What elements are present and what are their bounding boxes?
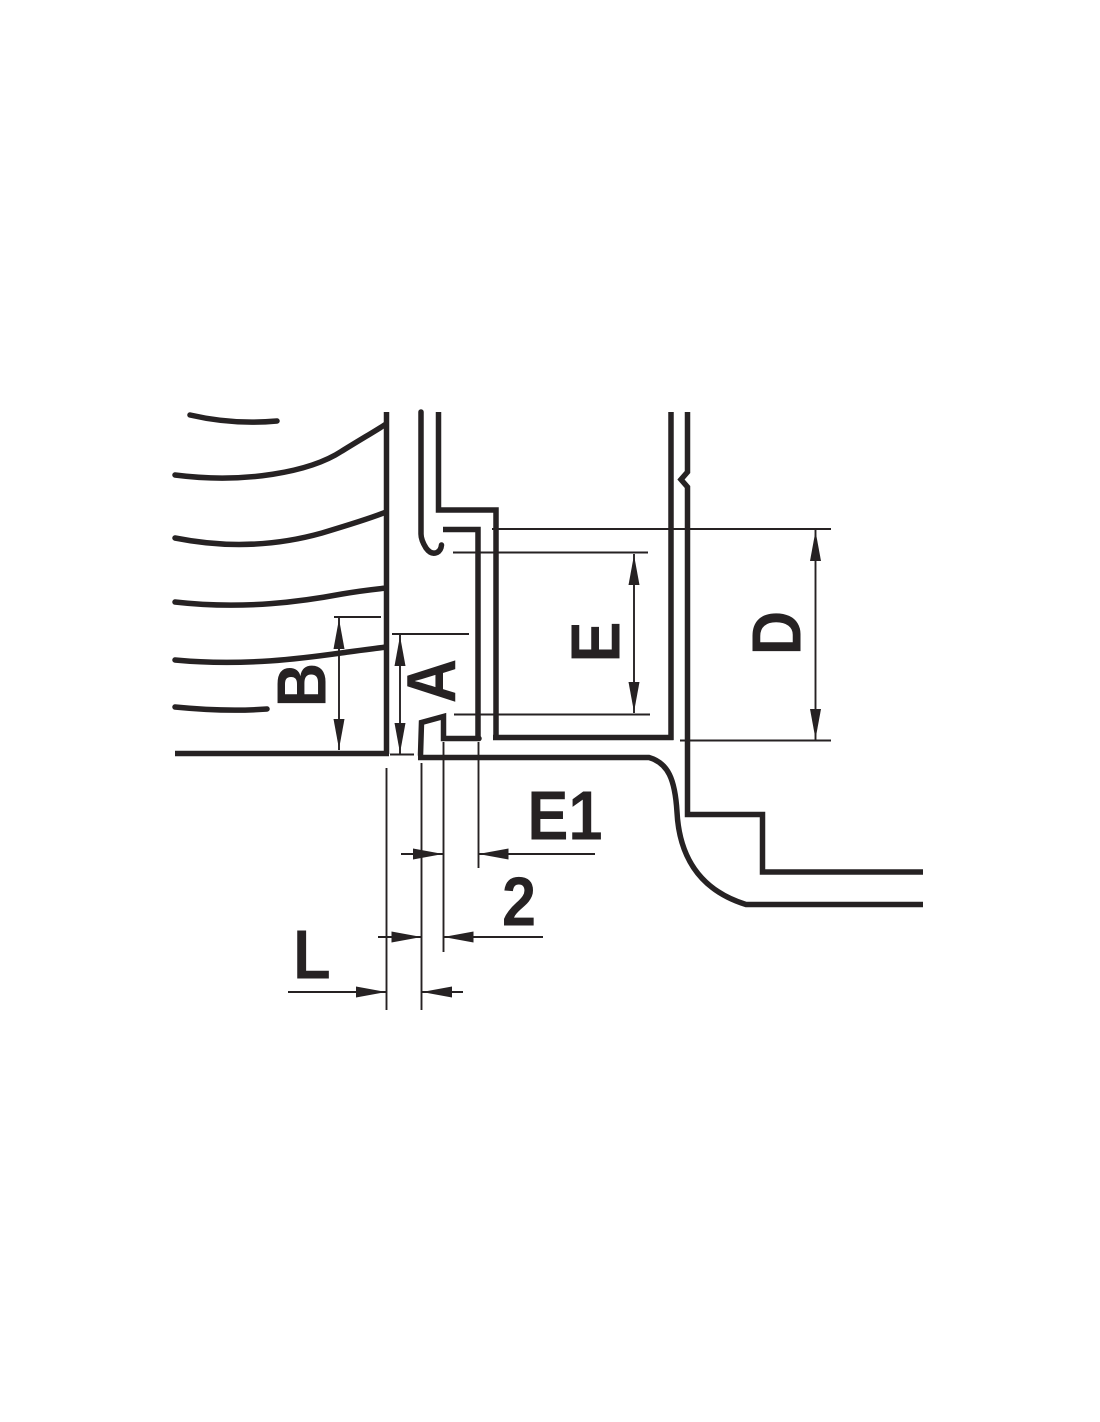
bulb-surface-arc-4 — [175, 588, 386, 605]
dimension-label-2: 2 — [502, 862, 536, 941]
dimension-arrowheads — [334, 531, 822, 998]
bulb-surface-arc-5 — [175, 647, 386, 662]
dimension-label-e1: E1 — [527, 776, 602, 855]
arrow-a-down-icon — [395, 723, 406, 753]
bulb-surface-arc-3 — [175, 512, 386, 545]
arrow-b-up-icon — [334, 619, 345, 649]
bulb-surface-arc-1 — [190, 415, 277, 422]
dimension-labels: B A E D E1 2 L — [262, 611, 816, 994]
skirt-profile — [418, 758, 923, 905]
dimension-label-a: A — [392, 659, 471, 703]
dimension-label-l: L — [293, 915, 331, 994]
arrow-l-right-icon — [422, 987, 452, 998]
arrow-l-left-icon — [356, 987, 386, 998]
dimension-lines — [288, 529, 831, 1010]
arrow-e-up-icon — [629, 555, 640, 585]
bulb-surface-arc-6 — [175, 707, 267, 710]
arrow-d-down-icon — [810, 709, 821, 739]
technical-drawing-page: B A E D E1 2 L — [0, 0, 1100, 1422]
arrow-d-up-icon — [810, 531, 821, 561]
dimension-label-d: D — [737, 611, 816, 655]
arrow-2-left-icon — [392, 932, 422, 943]
dimension-label-e: E — [556, 621, 635, 662]
cap-shell-profile — [421, 412, 924, 872]
bulb-surface-arc-2 — [175, 424, 386, 478]
shell-bottom-hook — [421, 717, 480, 756]
lamp-cap-section-drawing: B A E D E1 2 L — [0, 0, 1100, 1422]
dimension-label-b: B — [262, 663, 341, 707]
arrow-e-down-icon — [629, 682, 640, 712]
arrow-b-down-icon — [334, 719, 345, 749]
arrow-e1-right-icon — [479, 849, 509, 860]
arrow-e1-left-icon — [413, 849, 443, 860]
skirt-outline — [418, 758, 923, 905]
arrow-2-right-icon — [444, 932, 474, 943]
